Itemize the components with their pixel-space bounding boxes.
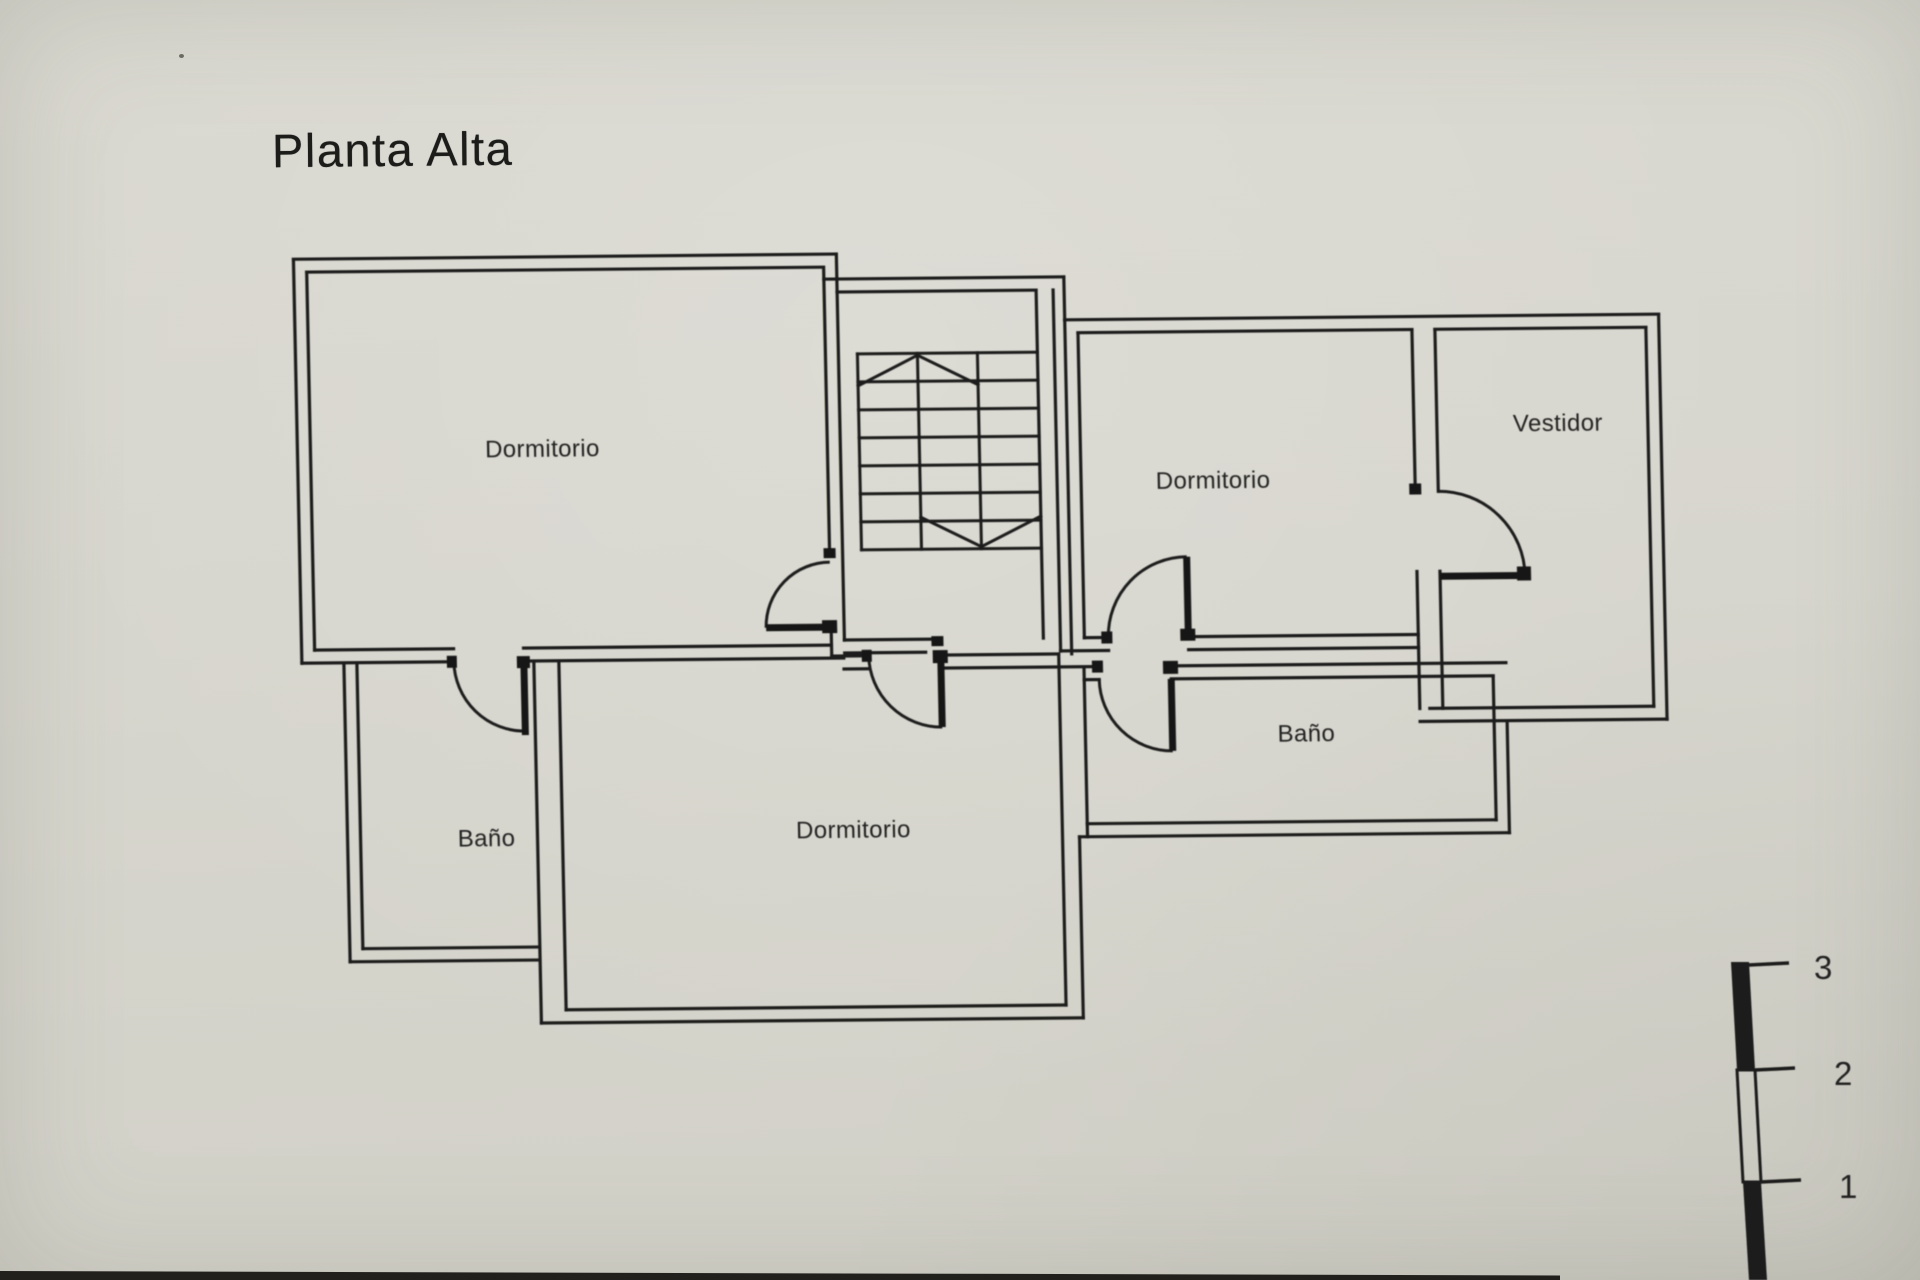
scale-bar-ticks [1749,963,1801,1182]
door-arc-dormitorio-top-left [765,562,831,628]
door-arc-dormitorio-bottom [869,655,942,728]
room-label-bano-right: Baño [1277,720,1335,748]
scale-bar-segment-solid-top [1731,962,1755,1070]
room-label-dormitorio-top-left: Dormitorio [485,435,600,463]
scale-tick-label-3: 3 [1814,949,1832,986]
scale-bar-segment-solid-bottom [1743,1182,1767,1280]
door-jamb-blocks [443,482,1533,680]
walls [293,246,1673,1025]
room-label-vestidor: Vestidor [1513,410,1603,438]
room-label-dormitorio-bottom: Dormitorio [796,816,911,844]
door-arc-vestidor [1438,490,1525,576]
door-arcs [450,490,1528,757]
scale-tick-label-1: 1 [1839,1168,1857,1205]
door-arc-dormitorio-right [1107,557,1189,638]
door-arc-bano-left [454,661,525,732]
room-label-dormitorio-right: Dormitorio [1155,467,1270,495]
room-label-bano-left: Baño [457,825,515,853]
floor-plan-drawing: Dormitorio Dormitorio Vestidor Baño Dorm… [0,0,1920,1280]
scale-bar-segment-hollow-middle [1737,1070,1761,1182]
door-arc-bano-right [1099,679,1172,752]
staircase [857,352,1041,550]
scale-bar: 3 2 1 [1731,949,1857,1280]
scanned-floor-plan-page: Planta Alta [0,0,1920,1280]
scale-tick-label-2: 2 [1834,1055,1852,1092]
